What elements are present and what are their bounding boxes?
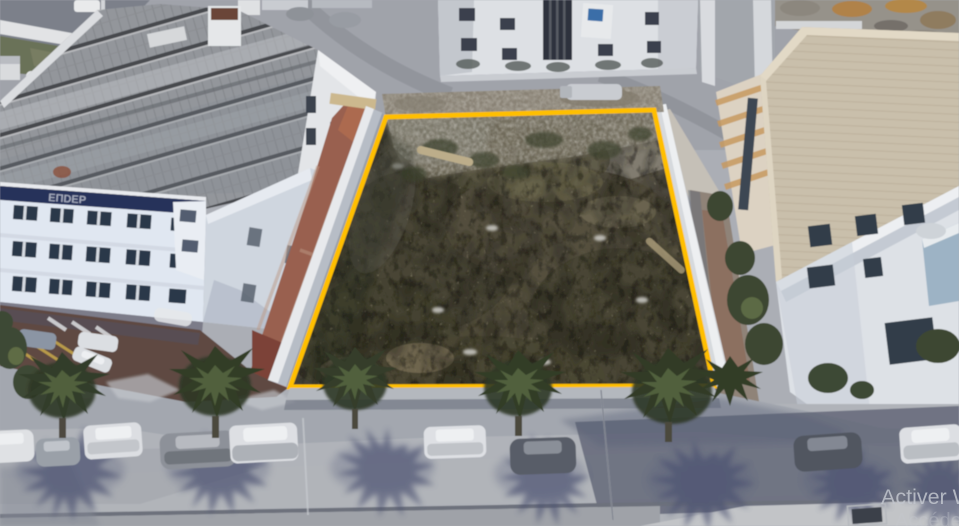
svg-text:Activer W: Activer W bbox=[881, 485, 959, 509]
svg-text:Accédez au: Accédez au bbox=[895, 510, 959, 526]
